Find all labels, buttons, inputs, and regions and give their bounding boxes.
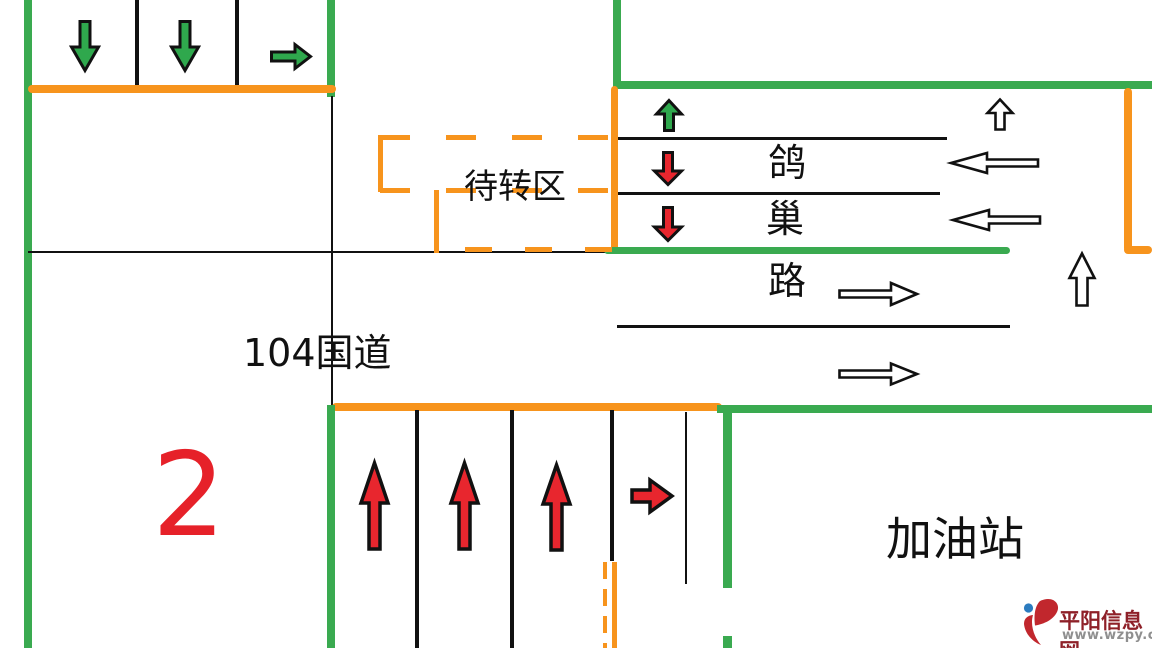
site-logo-icon <box>1020 598 1062 646</box>
waiting-zone-label: 待转区 <box>464 169 566 206</box>
road-edge-north-approach <box>327 0 335 97</box>
road-edge-east-top <box>613 0 621 84</box>
road-edge-south-right-of-gasstation <box>717 405 1152 413</box>
red-down-arrow-icon <box>653 206 683 242</box>
white-left-arrow-icon <box>948 151 1040 175</box>
intersection-diagram: 待转区 104国道 鸽 巢 路 加油站 2 平阳信息网 www.wzpy.com <box>0 0 1152 648</box>
red-down-arrow-icon <box>653 151 683 186</box>
gas-station-entry-solid-line <box>612 562 617 648</box>
cross-road-name-char: 路 <box>768 261 806 302</box>
lane-line <box>617 325 1010 328</box>
waiting-zone-inner-edge <box>434 190 439 253</box>
gas-station-curb-foot <box>1124 246 1152 254</box>
red-up-arrow-icon <box>541 463 572 552</box>
green-right-arrow-icon <box>270 43 312 70</box>
lane-divider <box>610 410 614 561</box>
road-edge-east-north <box>613 81 1152 89</box>
cross-road-name-char: 鸽 <box>768 143 806 184</box>
white-right-arrow-icon <box>838 280 920 308</box>
highway-label: 104国道 <box>243 333 392 374</box>
figure-number: 2 <box>152 438 226 554</box>
white-up-arrow-icon <box>1068 252 1096 307</box>
road-edge-south-east-stub <box>723 636 732 648</box>
red-up-arrow-icon <box>449 461 480 551</box>
stop-line-east <box>611 86 618 253</box>
white-right-arrow-icon <box>838 361 920 387</box>
lane-divider <box>415 410 419 648</box>
road-edge-west <box>24 0 32 648</box>
road-edge-east-median <box>604 247 1010 254</box>
green-up-arrow-icon <box>655 99 683 132</box>
road-edge-south-east <box>723 410 732 588</box>
stop-line-south <box>332 403 722 411</box>
gas-station-entry-dashed-line <box>603 562 607 648</box>
gas-station-curb-vertical <box>1124 88 1132 252</box>
lane-divider <box>135 0 139 88</box>
green-down-arrow-icon <box>70 20 100 72</box>
waiting-zone-left-edge <box>378 135 383 192</box>
cross-road-name-char: 巢 <box>766 199 804 240</box>
white-left-arrow-icon <box>950 208 1042 232</box>
waiting-zone-dashed-bottom <box>465 247 613 252</box>
watermark-site-url: www.wzpy.com <box>1062 628 1152 643</box>
red-right-arrow-icon <box>630 476 674 516</box>
lane-line <box>618 137 947 140</box>
waiting-zone-dashed-top <box>380 135 610 140</box>
lane-divider <box>510 410 514 648</box>
lane-line <box>618 192 940 195</box>
gas-station-label: 加油站 <box>886 515 1024 565</box>
red-up-arrow-icon <box>359 461 390 551</box>
road-edge-south-west <box>327 405 335 648</box>
white-up-arrow-icon <box>986 98 1014 131</box>
lane-divider <box>235 0 239 88</box>
lane-line-thin <box>685 412 687 584</box>
green-down-arrow-icon <box>170 20 200 72</box>
stop-line-north <box>28 85 336 93</box>
